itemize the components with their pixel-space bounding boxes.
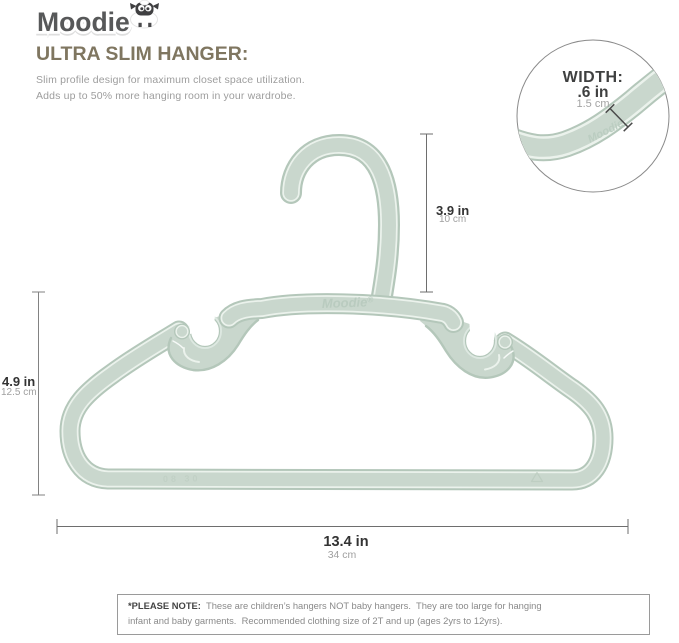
- svg-text:Moodie®: Moodie®: [322, 294, 374, 311]
- svg-text:Moodie: Moodie: [37, 7, 130, 37]
- svg-text:08 30: 08 30: [163, 473, 201, 484]
